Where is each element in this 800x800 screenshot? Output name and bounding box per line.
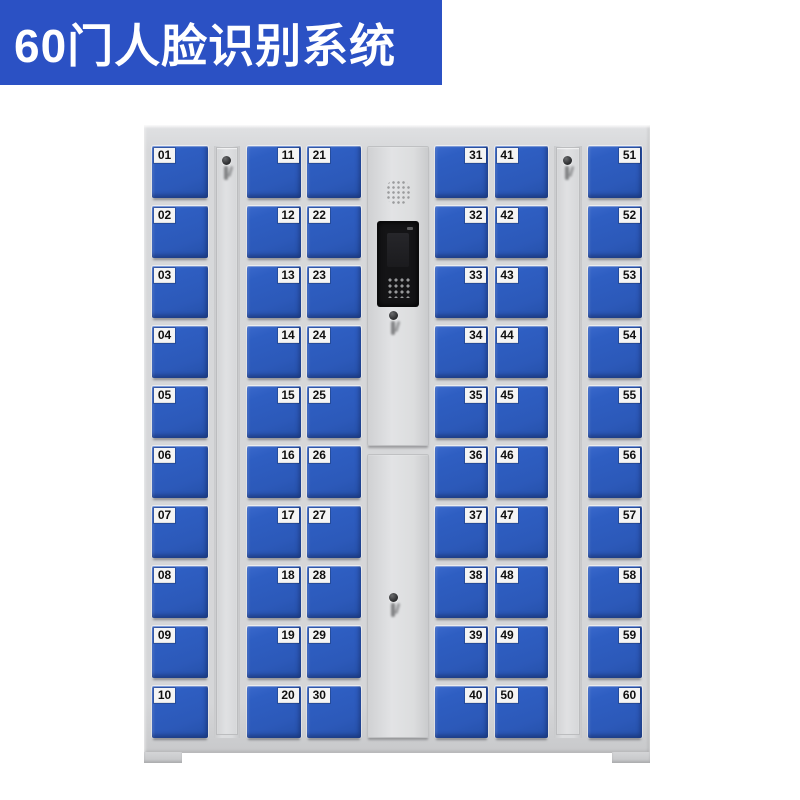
door-number-label: 15: [278, 388, 299, 403]
door-number-label: 22: [309, 208, 330, 223]
locker-door-56[interactable]: 56: [588, 446, 642, 498]
locker-door-32[interactable]: 32: [435, 206, 488, 258]
locker-door-30[interactable]: 30: [307, 686, 361, 738]
locker-door-21[interactable]: 21: [307, 146, 361, 198]
door-number-label: 38: [465, 568, 486, 583]
locker-door-60[interactable]: 60: [588, 686, 642, 738]
door-number-label: 29: [309, 628, 330, 643]
locker-door-05[interactable]: 05: [152, 386, 208, 438]
locker-door-45[interactable]: 45: [495, 386, 548, 438]
locker-door-59[interactable]: 59: [588, 626, 642, 678]
door-number-label: 41: [497, 148, 518, 163]
cabinet-body: 0102030405060708091011121314151617181920…: [152, 146, 642, 738]
door-number-label: 06: [154, 448, 175, 463]
locker-door-11[interactable]: 11: [247, 146, 301, 198]
door-number-label: 50: [497, 688, 518, 703]
locker-door-19[interactable]: 19: [247, 626, 301, 678]
door-number-label: 42: [497, 208, 518, 223]
locker-door-46[interactable]: 46: [495, 446, 548, 498]
locker-door-24[interactable]: 24: [307, 326, 361, 378]
locker-door-08[interactable]: 08: [152, 566, 208, 618]
indicator-led-icon: [407, 227, 413, 230]
locker-door-13[interactable]: 13: [247, 266, 301, 318]
locker-door-58[interactable]: 58: [588, 566, 642, 618]
hanging-keys-icon: [387, 601, 403, 621]
door-number-label: 48: [497, 568, 518, 583]
door-number-label: 45: [497, 388, 518, 403]
locker-door-31[interactable]: 31: [435, 146, 488, 198]
door-number-label: 17: [278, 508, 299, 523]
door-number-label: 43: [497, 268, 518, 283]
door-column-col-c: 21222324252627282930: [307, 146, 361, 738]
speaker-grille-icon: [385, 179, 411, 205]
camera-window: [387, 233, 409, 267]
cabinet-foot-left: [144, 752, 182, 763]
locker-door-25[interactable]: 25: [307, 386, 361, 438]
locker-door-27[interactable]: 27: [307, 506, 361, 558]
door-number-label: 37: [465, 508, 486, 523]
locker-door-50[interactable]: 50: [495, 686, 548, 738]
door-number-label: 47: [497, 508, 518, 523]
locker-door-39[interactable]: 39: [435, 626, 488, 678]
door-number-label: 59: [619, 628, 640, 643]
door-number-label: 04: [154, 328, 175, 343]
key-lock[interactable]: [561, 156, 577, 186]
locker-door-09[interactable]: 09: [152, 626, 208, 678]
door-number-label: 20: [278, 688, 299, 703]
door-number-label: 34: [465, 328, 486, 343]
locker-door-17[interactable]: 17: [247, 506, 301, 558]
locker-door-14[interactable]: 14: [247, 326, 301, 378]
door-number-label: 12: [278, 208, 299, 223]
locker-door-23[interactable]: 23: [307, 266, 361, 318]
locker-door-18[interactable]: 18: [247, 566, 301, 618]
locker-door-26[interactable]: 26: [307, 446, 361, 498]
locker-door-28[interactable]: 28: [307, 566, 361, 618]
locker-door-52[interactable]: 52: [588, 206, 642, 258]
door-column-col-b: 11121314151617181920: [247, 146, 301, 738]
door-number-label: 60: [619, 688, 640, 703]
door-number-label: 44: [497, 328, 518, 343]
locker-door-43[interactable]: 43: [495, 266, 548, 318]
locker-door-16[interactable]: 16: [247, 446, 301, 498]
door-number-label: 32: [465, 208, 486, 223]
locker-door-03[interactable]: 03: [152, 266, 208, 318]
locker-door-42[interactable]: 42: [495, 206, 548, 258]
door-number-label: 21: [309, 148, 330, 163]
locker-door-40[interactable]: 40: [435, 686, 488, 738]
cabinet-foot-right: [612, 752, 650, 763]
door-number-label: 30: [309, 688, 330, 703]
locker-door-20[interactable]: 20: [247, 686, 301, 738]
locker-door-49[interactable]: 49: [495, 626, 548, 678]
door-number-label: 28: [309, 568, 330, 583]
locker-door-51[interactable]: 51: [588, 146, 642, 198]
locker-door-01[interactable]: 01: [152, 146, 208, 198]
door-number-label: 54: [619, 328, 640, 343]
door-number-label: 55: [619, 388, 640, 403]
face-recognition-screen[interactable]: [378, 222, 418, 306]
upper-door-key-lock[interactable]: [387, 311, 403, 341]
locker-door-36[interactable]: 36: [435, 446, 488, 498]
door-number-label: 07: [154, 508, 175, 523]
door-number-label: 11: [278, 148, 299, 163]
title-banner: 60门人脸识别系统: [0, 0, 442, 85]
door-column-col-d: 31323334353637383940: [435, 146, 488, 738]
locker-door-12[interactable]: 12: [247, 206, 301, 258]
door-number-label: 18: [278, 568, 299, 583]
locker-door-37[interactable]: 37: [435, 506, 488, 558]
door-number-label: 58: [619, 568, 640, 583]
door-number-label: 01: [154, 148, 175, 163]
control-door-lower[interactable]: [367, 454, 429, 738]
door-number-label: 49: [497, 628, 518, 643]
door-number-label: 08: [154, 568, 175, 583]
locker-cabinet: 0102030405060708091011121314151617181920…: [144, 125, 650, 753]
door-number-label: 05: [154, 388, 175, 403]
door-number-label: 36: [465, 448, 486, 463]
locker-door-02[interactable]: 02: [152, 206, 208, 258]
door-number-label: 46: [497, 448, 518, 463]
locker-door-53[interactable]: 53: [588, 266, 642, 318]
door-number-label: 35: [465, 388, 486, 403]
door-number-label: 26: [309, 448, 330, 463]
locker-door-57[interactable]: 57: [588, 506, 642, 558]
locker-door-33[interactable]: 33: [435, 266, 488, 318]
door-number-label: 57: [619, 508, 640, 523]
door-number-label: 14: [278, 328, 299, 343]
key-strip-door[interactable]: [216, 147, 238, 735]
locker-door-15[interactable]: 15: [247, 386, 301, 438]
door-number-label: 13: [278, 268, 299, 283]
locker-door-06[interactable]: 06: [152, 446, 208, 498]
control-column: [367, 146, 429, 738]
hanging-keys-icon: [387, 319, 403, 339]
locker-door-54[interactable]: 54: [588, 326, 642, 378]
key-lock[interactable]: [220, 156, 236, 186]
door-number-label: 19: [278, 628, 299, 643]
locker-door-47[interactable]: 47: [495, 506, 548, 558]
door-number-label: 09: [154, 628, 175, 643]
door-number-label: 51: [619, 148, 640, 163]
locker-door-41[interactable]: 41: [495, 146, 548, 198]
door-column-col-e: 41424344454647484950: [495, 146, 548, 738]
door-column-col-f: 51525354555657585960: [588, 146, 642, 738]
lower-door-key-lock[interactable]: [387, 593, 403, 623]
key-strip-door[interactable]: [556, 147, 580, 735]
locker-door-29[interactable]: 29: [307, 626, 361, 678]
door-number-label: 52: [619, 208, 640, 223]
locker-door-22[interactable]: 22: [307, 206, 361, 258]
door-number-label: 03: [154, 268, 175, 283]
door-number-label: 56: [619, 448, 640, 463]
locker-door-48[interactable]: 48: [495, 566, 548, 618]
locker-door-55[interactable]: 55: [588, 386, 642, 438]
locker-door-34[interactable]: 34: [435, 326, 488, 378]
door-number-label: 53: [619, 268, 640, 283]
door-number-label: 23: [309, 268, 330, 283]
key-strip-ks1: [214, 146, 240, 738]
control-door-upper[interactable]: [367, 146, 429, 446]
locker-door-10[interactable]: 10: [152, 686, 208, 738]
door-number-label: 33: [465, 268, 486, 283]
locker-door-07[interactable]: 07: [152, 506, 208, 558]
banner-title: 60门人脸识别系统: [0, 10, 396, 76]
locker-door-04[interactable]: 04: [152, 326, 208, 378]
door-number-label: 02: [154, 208, 175, 223]
door-number-label: 10: [154, 688, 175, 703]
door-column-col-a: 01020304050607080910: [152, 146, 208, 738]
door-number-label: 31: [465, 148, 486, 163]
door-number-label: 40: [465, 688, 486, 703]
door-number-label: 25: [309, 388, 330, 403]
door-number-label: 27: [309, 508, 330, 523]
key-strip-ks2: [554, 146, 582, 738]
hanging-keys-icon: [561, 164, 577, 184]
keypad[interactable]: [386, 276, 410, 298]
door-number-label: 39: [465, 628, 486, 643]
door-number-label: 16: [278, 448, 299, 463]
locker-door-35[interactable]: 35: [435, 386, 488, 438]
door-number-label: 24: [309, 328, 330, 343]
locker-door-38[interactable]: 38: [435, 566, 488, 618]
hanging-keys-icon: [220, 164, 236, 184]
locker-door-44[interactable]: 44: [495, 326, 548, 378]
